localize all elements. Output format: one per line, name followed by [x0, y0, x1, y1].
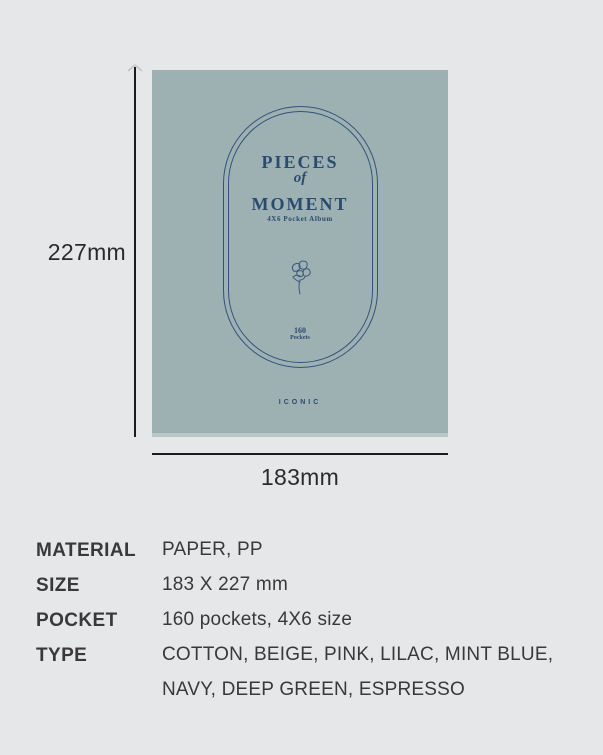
album-cover-image: PIECES of MOMENT 4X6 Pocket Album 160 Po…	[152, 70, 448, 437]
spec-label: TYPE	[36, 645, 162, 701]
spec-row-size: SIZE 183 X 227 mm	[36, 575, 576, 597]
height-dimension-line	[134, 67, 136, 437]
width-dimension-label: 183mm	[152, 464, 448, 491]
height-dimension-label: 227mm	[40, 239, 126, 266]
spec-value: 183 X 227 mm	[162, 575, 288, 597]
cover-title-line2: of	[152, 170, 448, 187]
spec-value-line1: COTTON, BEIGE, PINK, LILAC, MINT BLUE,	[162, 644, 553, 665]
spec-value: COTTON, BEIGE, PINK, LILAC, MINT BLUE, N…	[162, 645, 553, 701]
spec-value-line2: NAVY, DEEP GREEN, ESPRESSO	[162, 680, 553, 701]
cover-bottom-edge-highlight	[152, 433, 448, 437]
cover-brand-logo: ICONIC	[152, 399, 448, 406]
flower-sketch-icon	[152, 258, 448, 301]
cover-pocket-count: 160	[152, 326, 448, 335]
product-detail-page: 227mm PIECES of MOMENT 4X6 Pocket Album	[0, 0, 603, 755]
spec-label: SIZE	[36, 575, 162, 597]
spec-value: PAPER, PP	[162, 540, 263, 562]
spec-value: 160 pockets, 4X6 size	[162, 610, 352, 632]
cover-subtitle: 4X6 Pocket Album	[152, 215, 448, 223]
cover-title-line3: MOMENT	[152, 194, 448, 215]
width-dimension-line	[152, 453, 448, 455]
spec-row-type: TYPE COTTON, BEIGE, PINK, LILAC, MINT BL…	[36, 645, 576, 701]
spec-row-pocket: POCKET 160 pockets, 4X6 size	[36, 610, 576, 632]
cover-pocket-count-label: Pockets	[152, 335, 448, 341]
spec-row-material: MATERIAL PAPER, PP	[36, 540, 576, 562]
spec-label: MATERIAL	[36, 540, 162, 562]
spec-label: POCKET	[36, 610, 162, 632]
spec-table: MATERIAL PAPER, PP SIZE 183 X 227 mm POC…	[36, 540, 576, 714]
